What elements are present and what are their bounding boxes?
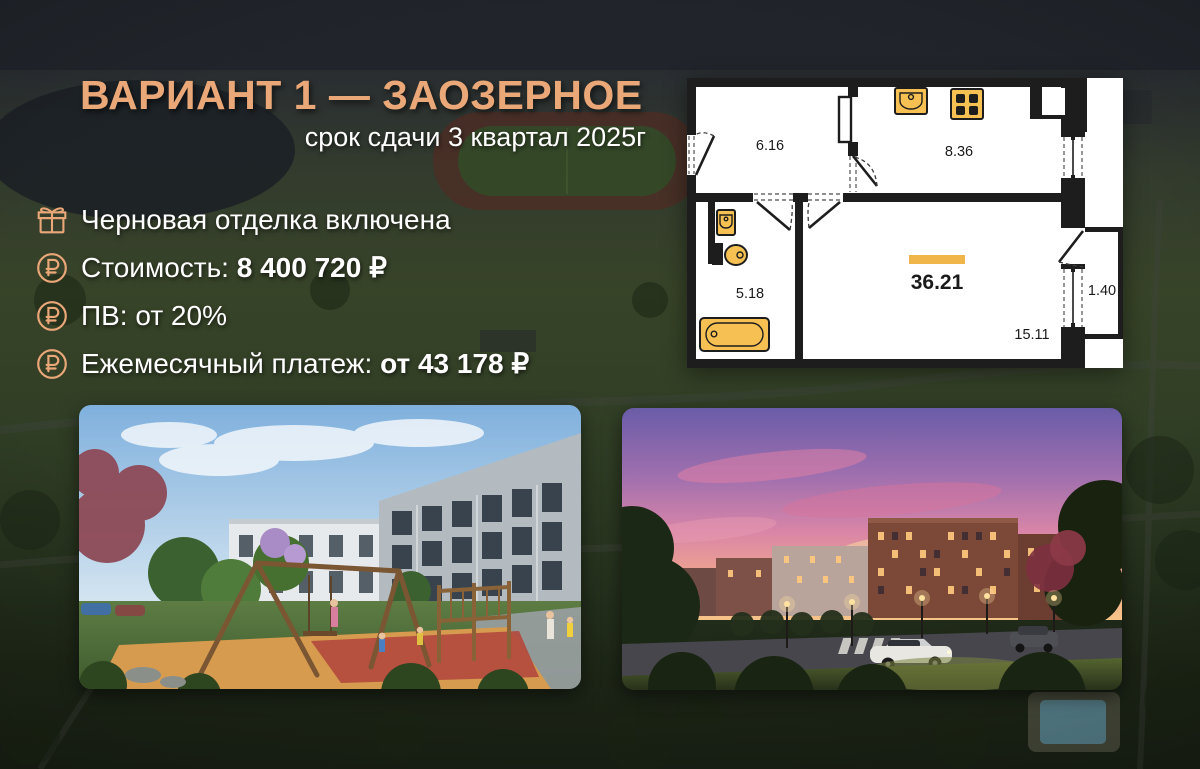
feature-price: Стоимость: 8 400 720 ₽ bbox=[33, 249, 633, 286]
ruble-circle-icon bbox=[33, 345, 71, 383]
page-title: ВАРИАНТ 1 — ЗАОЗЕРНОЕ bbox=[80, 72, 646, 119]
total-area-label: 36.21 bbox=[911, 271, 964, 294]
gift-icon bbox=[33, 201, 71, 239]
slide: ВАРИАНТ 1 — ЗАОЗЕРНОЕ срок сдачи 3 кварт… bbox=[0, 0, 1200, 769]
kitchen-area-label: 8.36 bbox=[945, 144, 973, 160]
feature-text: Ежемесячный платеж: от 43 178 ₽ bbox=[81, 347, 529, 380]
feature-text: Стоимость: 8 400 720 ₽ bbox=[81, 251, 387, 284]
feature-downpayment: ПВ: от 20% bbox=[33, 297, 633, 334]
photo-street-sunset bbox=[622, 408, 1122, 690]
bathroom-area-label: 5.18 bbox=[736, 286, 764, 302]
door-frame bbox=[839, 97, 851, 142]
feature-monthly-payment: Ежемесячный платеж: от 43 178 ₽ bbox=[33, 345, 633, 382]
stove-icon bbox=[951, 89, 983, 119]
ruble-circle-icon bbox=[33, 297, 71, 335]
bathtub-icon bbox=[700, 318, 769, 351]
feature-text: ПВ: от 20% bbox=[81, 300, 227, 332]
ruble-circle-icon bbox=[33, 249, 71, 287]
feature-list: Черновая отделка включена Стоимость: 8 4… bbox=[33, 201, 633, 393]
kitchen-sink-icon bbox=[895, 88, 927, 114]
floor-plan: 6.16 8.36 5.18 36.21 15.11 1.40 bbox=[687, 78, 1123, 368]
feature-text: Черновая отделка включена bbox=[81, 204, 451, 236]
bg-pool bbox=[1028, 692, 1120, 752]
toilet-icon bbox=[725, 245, 747, 265]
balcony-area-label: 1.40 bbox=[1088, 283, 1116, 299]
living-room-area-label: 15.11 bbox=[1014, 327, 1049, 343]
feature-finish: Черновая отделка включена bbox=[33, 201, 633, 238]
total-area-accent-bar bbox=[909, 255, 965, 264]
bg-sea bbox=[0, 0, 1200, 70]
photo-playground bbox=[79, 405, 581, 689]
hallway-area-label: 6.16 bbox=[756, 138, 784, 154]
bathroom-sink-icon bbox=[717, 210, 735, 235]
completion-date: срок сдачи 3 квартал 2025г bbox=[80, 122, 646, 153]
